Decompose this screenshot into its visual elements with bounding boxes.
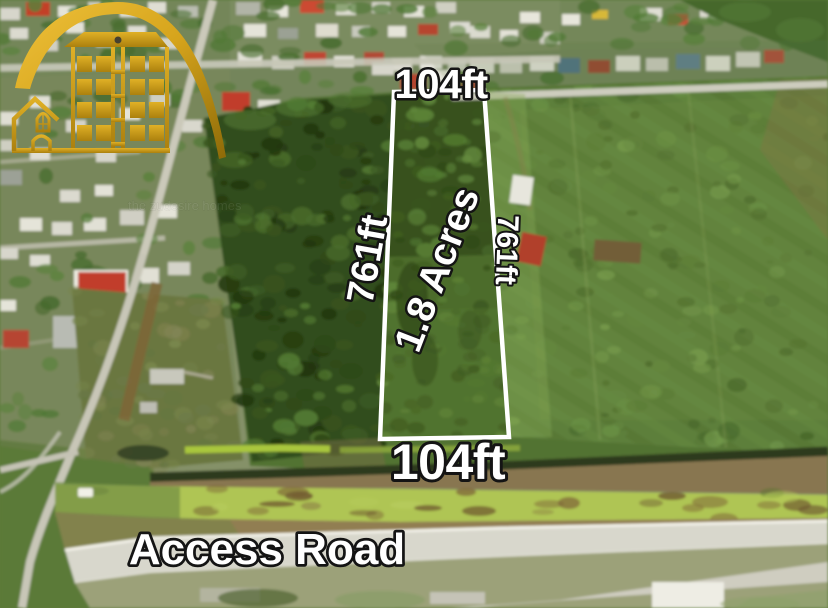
svg-text:104ft: 104ft xyxy=(391,434,506,490)
svg-text:761ft: 761ft xyxy=(489,214,524,285)
svg-text:Access Road: Access Road xyxy=(129,525,405,574)
svg-text:104ft: 104ft xyxy=(394,61,488,107)
svg-text:the zudesire homes: the zudesire homes xyxy=(128,198,242,213)
